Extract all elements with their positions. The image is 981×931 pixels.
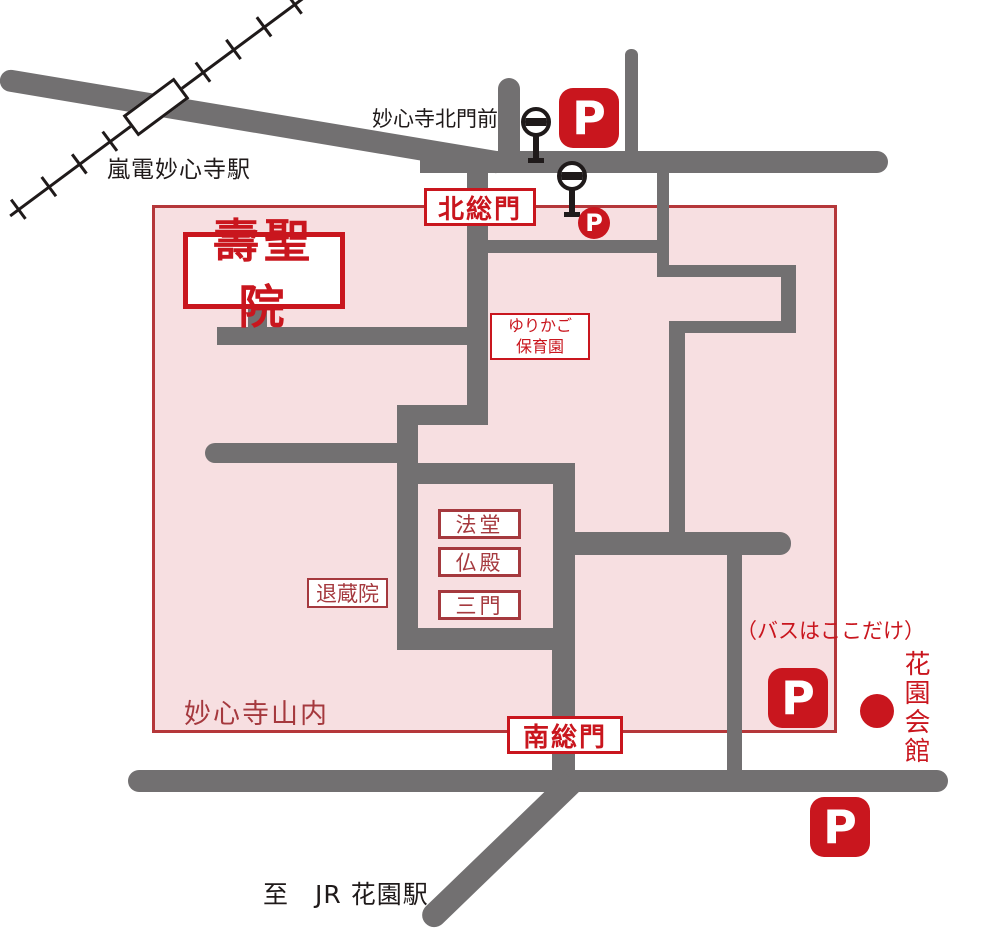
to-jr-hanazono-label: 至 JR 花園駅 [263, 875, 429, 911]
butsuden-label: 仏殿 [456, 547, 504, 577]
south-gate-label: 南総門 [523, 717, 607, 754]
road-south-main [128, 770, 948, 792]
taizoin-label-box: 退蔵院 [307, 578, 388, 608]
bus-stop-sign-base [564, 212, 580, 217]
bus-stop-north-label: 妙心寺北門前 [372, 103, 498, 133]
nursery-label-line1: ゆりかご [508, 316, 572, 337]
bus-stop-icon [557, 161, 587, 217]
myoshinji-access-map: P P P P 壽聖院 北総門 南総門 ゆりかご 保育園 法堂 仏殿 三門 退蔵… [0, 0, 981, 931]
bus-stop-sign-head [521, 107, 551, 137]
parking-icon-north-gate: P [578, 207, 610, 239]
road-complex-right [553, 463, 575, 650]
road-east-vertical-a [657, 172, 669, 277]
bus-stop-icon [521, 107, 551, 163]
bus-stop-sign-pole [569, 190, 575, 212]
north-gate-label: 北総門 [438, 189, 522, 226]
bus-boarding-point-icon [860, 694, 894, 728]
road-east-horizontal-b [657, 265, 796, 277]
parking-icon-south-gate: P [768, 668, 828, 728]
road-east-cap [553, 532, 791, 555]
road-jr-diagonal [417, 772, 581, 931]
north-gate-label-box: 北総門 [424, 188, 536, 226]
road-east-horizontal-d [669, 321, 796, 333]
nursery-label-box: ゆりかご 保育園 [490, 313, 590, 360]
road-east-connector [478, 240, 669, 253]
road-top-vertical [625, 49, 638, 173]
hatto-label-box: 法堂 [438, 509, 521, 539]
bus-only-here-note: （バスはここだけ） [736, 615, 925, 645]
road-complex-bottom [397, 628, 575, 650]
hatto-label: 法堂 [456, 509, 504, 539]
randen-station-label: 嵐電妙心寺駅 [107, 150, 251, 184]
bus-stop-sign-pole [533, 136, 539, 158]
precinct-label: 妙心寺山内 [184, 692, 329, 731]
parking-icon-south: P [810, 797, 870, 857]
road-bus-street [727, 545, 742, 780]
butsuden-label-box: 仏殿 [438, 547, 521, 577]
sanmon-label: 三門 [456, 590, 504, 620]
south-gate-label-box: 南総門 [507, 716, 623, 754]
taizoin-label: 退蔵院 [316, 578, 379, 608]
jushoin-label-box: 壽聖院 [183, 232, 345, 309]
road-north-stub [498, 78, 520, 158]
sanmon-label-box: 三門 [438, 590, 521, 620]
bus-stop-sign-head [557, 161, 587, 191]
road-north-main [420, 151, 888, 173]
bus-stop-sign-base [528, 158, 544, 163]
hanazono-hall-label: 花園会館 [897, 650, 934, 766]
road-west-cap [205, 443, 418, 463]
nursery-label-line2: 保育園 [516, 337, 564, 358]
jushoin-label: 壽聖院 [188, 205, 340, 337]
road-west-vertical [397, 405, 418, 650]
road-east-vertical-e [669, 321, 685, 545]
road-complex-top [397, 463, 575, 484]
parking-icon-north: P [559, 88, 619, 148]
